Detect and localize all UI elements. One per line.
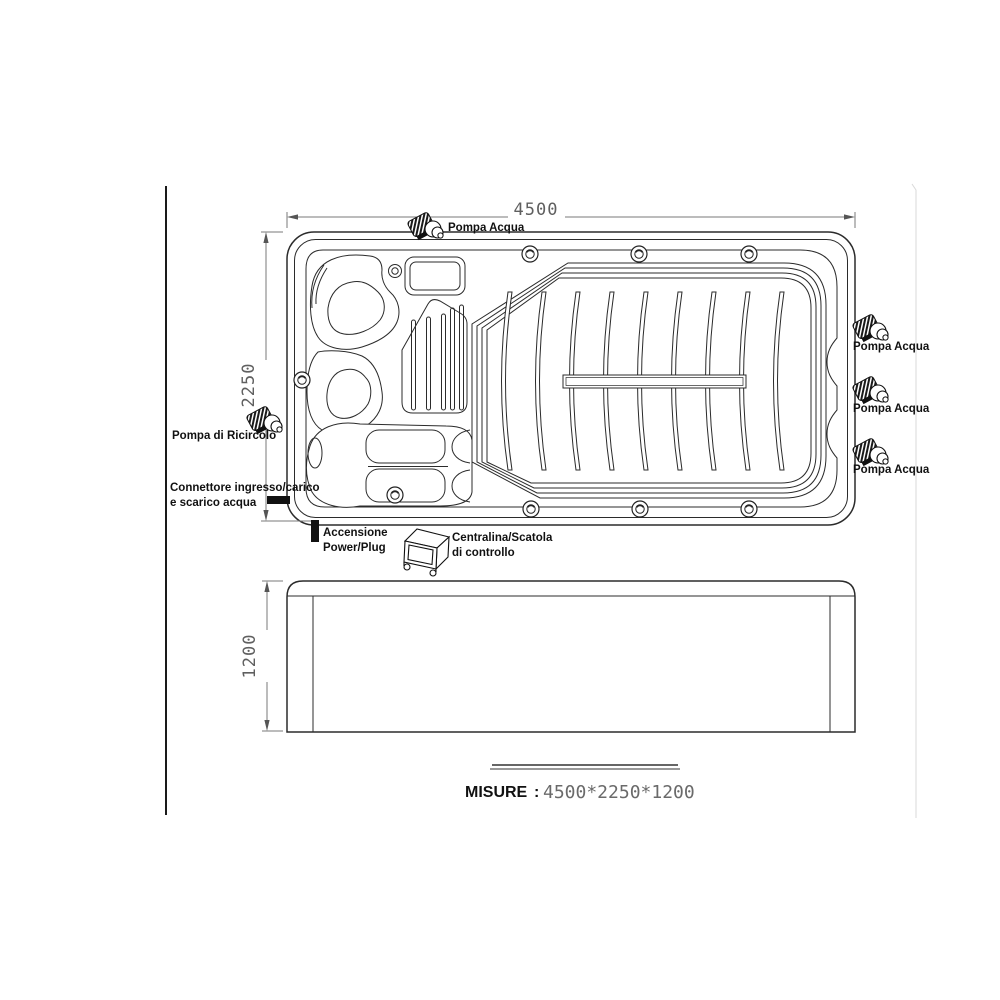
water-pump-icon <box>852 314 888 342</box>
screw-icon <box>741 501 757 517</box>
screw-icon <box>741 246 757 262</box>
water-pump-icon <box>852 376 888 404</box>
screw-icon <box>387 487 403 503</box>
dimension-height: 1200 <box>240 581 283 731</box>
misure-value: 4500*2250*1200 <box>543 782 695 803</box>
grab-bar <box>563 375 746 388</box>
top-view: 4500 2250 Pompa Acqua Pompa di Ricircolo… <box>170 200 930 576</box>
power-plug-bar-icon <box>311 520 319 542</box>
dimension-depth-value: 2250 <box>239 363 259 408</box>
dimension-height-value: 1200 <box>240 634 260 679</box>
control-box-label-line1: Centralina/Scatola <box>452 532 553 544</box>
cabinet-outline <box>287 581 855 732</box>
water-pump-icon <box>852 438 888 466</box>
recirculation-pump-label: Pompa di Ricircolo <box>172 430 276 442</box>
page-border-right-line <box>912 184 916 818</box>
water-pump-icon <box>407 212 443 240</box>
connector-bar-icon <box>267 496 290 504</box>
screw-icon <box>294 372 310 388</box>
seat-middle-left <box>307 351 382 434</box>
misure-separator: : <box>534 784 539 801</box>
power-label-line1: Accensione <box>323 527 388 539</box>
screw-icon <box>522 246 538 262</box>
control-box-icon <box>404 529 449 576</box>
control-box-label-line2: di controllo <box>452 547 515 559</box>
jet-icon <box>389 265 402 278</box>
measurements-footer: MISURE : 4500*2250*1200 <box>465 765 695 803</box>
bench-steps <box>402 300 467 413</box>
misure-label: MISURE <box>465 784 528 801</box>
headrest-pillow <box>405 257 465 295</box>
water-pump-label-right-1: Pompa Acqua <box>853 341 930 353</box>
screw-icon <box>523 501 539 517</box>
water-pump-label-right-2: Pompa Acqua <box>853 403 930 415</box>
side-view: 1200 <box>240 581 855 732</box>
technical-drawing-canvas: 4500 2250 Pompa Acqua Pompa di Ricircolo… <box>0 0 1000 1000</box>
water-pump-label-top: Pompa Acqua <box>448 222 525 234</box>
water-pump-label-right-3: Pompa Acqua <box>853 464 930 476</box>
connector-label-line1: Connettore ingresso/carico <box>170 482 320 494</box>
screw-icon <box>631 246 647 262</box>
seat-top-left <box>310 255 399 349</box>
screw-icon <box>632 501 648 517</box>
power-label-line2: Power/Plug <box>323 542 386 554</box>
technical-drawing-page: 4500 2250 Pompa Acqua Pompa di Ricircolo… <box>0 0 1000 1000</box>
dimension-width-value: 4500 <box>514 200 559 220</box>
connector-label-line2: e scarico acqua <box>170 497 257 509</box>
dimension-width: 4500 <box>287 200 855 228</box>
